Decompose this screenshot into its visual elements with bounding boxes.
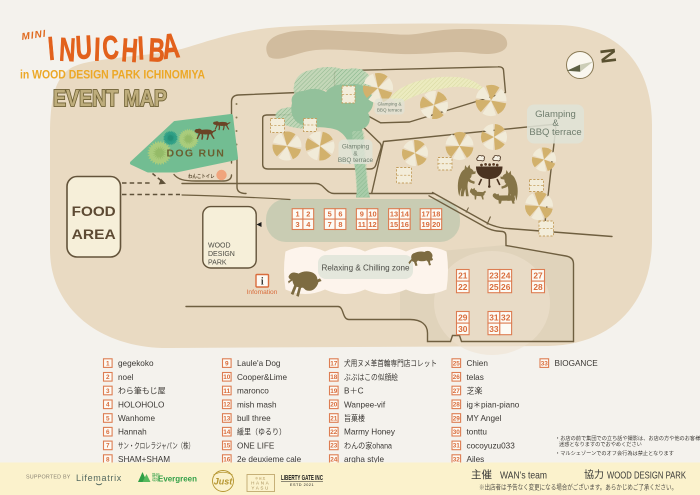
svg-text:EVENT MAP: EVENT MAP <box>53 85 167 111</box>
svg-text:犬用ヌメ革首輪専門店コレット: 犬用ヌメ革首輪専門店コレット <box>344 358 437 368</box>
svg-text:8: 8 <box>338 220 342 229</box>
svg-text:わんこトイレ: わんこトイレ <box>188 173 215 180</box>
svg-text:9: 9 <box>360 210 364 219</box>
svg-text:N: N <box>58 30 76 68</box>
svg-text:Just: Just <box>214 477 234 487</box>
svg-text:6: 6 <box>338 210 342 219</box>
svg-text:31: 31 <box>453 443 461 450</box>
svg-text:わんの家ohana: わんの家ohana <box>344 440 393 450</box>
svg-text:28: 28 <box>453 402 461 409</box>
svg-text:20: 20 <box>330 402 338 409</box>
svg-text:※出店者は予告なく変更になる場合がございます。あらかじめご了: ※出店者は予告なく変更になる場合がございます。あらかじめご了承ください。 <box>479 483 677 492</box>
svg-text:21: 21 <box>330 415 338 422</box>
svg-text:28: 28 <box>533 282 543 292</box>
svg-text:cocoyuzu033: cocoyuzu033 <box>467 441 516 450</box>
svg-text:Laule'a Dog: Laule'a Dog <box>237 359 281 368</box>
svg-text:AREA: AREA <box>72 227 116 242</box>
svg-text:telas: telas <box>467 373 484 382</box>
svg-text:19: 19 <box>330 388 338 395</box>
svg-text:迷惑となりますのでおやめください: 迷惑となりますのでおやめください <box>559 440 642 448</box>
svg-text:14: 14 <box>401 210 410 219</box>
svg-text:12: 12 <box>223 402 231 409</box>
svg-text:DESIGN: DESIGN <box>208 251 235 258</box>
svg-text:Lifematrix: Lifematrix <box>76 473 122 483</box>
svg-text:13: 13 <box>223 415 231 422</box>
svg-text:25: 25 <box>453 360 461 367</box>
svg-text:30: 30 <box>453 429 461 436</box>
svg-text:BBQ terrace: BBQ terrace <box>529 127 581 138</box>
svg-text:mish mash: mish mash <box>237 400 277 409</box>
svg-text:5: 5 <box>106 415 110 422</box>
svg-text:芝楽: 芝楽 <box>467 386 483 396</box>
svg-text:16: 16 <box>223 456 231 463</box>
svg-text:Marmy Honey: Marmy Honey <box>344 428 396 437</box>
svg-text:ig＊pian-piano: ig＊pian-piano <box>467 400 520 409</box>
svg-text:in WOOD DESIGN PARK ICHINOMIYA: in WOOD DESIGN PARK ICHINOMIYA <box>20 70 205 82</box>
svg-text:26: 26 <box>453 374 461 381</box>
svg-text:11: 11 <box>358 220 366 229</box>
svg-text:23: 23 <box>489 270 499 280</box>
svg-text:Infomation: Infomation <box>247 289 278 296</box>
svg-text:7: 7 <box>328 220 332 229</box>
svg-text:1: 1 <box>296 210 300 219</box>
svg-text:30: 30 <box>458 324 468 334</box>
svg-text:Glamping &: Glamping & <box>377 101 401 106</box>
svg-text:YASU: YASU <box>251 486 270 491</box>
svg-text:29: 29 <box>458 312 468 322</box>
svg-text:SUPPORTED BY: SUPPORTED BY <box>26 475 71 481</box>
svg-text:29: 29 <box>453 415 461 422</box>
svg-text:BBQ terrace: BBQ terrace <box>338 157 374 164</box>
svg-text:4: 4 <box>106 402 110 409</box>
svg-text:17: 17 <box>330 360 338 367</box>
svg-text:旨菓楼: 旨菓楼 <box>344 413 365 423</box>
svg-text:・マルシェゾーンでのオフ会行為は禁止となります: ・マルシェゾーンでのオフ会行為は禁止となります <box>555 449 674 457</box>
svg-text:6: 6 <box>106 429 110 436</box>
svg-text:Relaxing & Chilling zone: Relaxing & Chilling zone <box>322 263 410 273</box>
svg-text:27: 27 <box>533 270 543 280</box>
svg-text:HOLOHOLO: HOLOHOLO <box>118 400 164 409</box>
svg-text:8: 8 <box>106 456 110 463</box>
svg-text:33: 33 <box>489 324 499 334</box>
svg-text:18: 18 <box>432 210 440 219</box>
svg-text:FOOD: FOOD <box>72 204 116 219</box>
svg-text:・お店の前で集団での立ち話や撮影は、お店の方や他のお客様に: ・お店の前で集団での立ち話や撮影は、お店の方や他のお客様に <box>555 434 700 442</box>
svg-text:I: I <box>93 30 101 68</box>
svg-text:Wanhome: Wanhome <box>118 414 155 423</box>
svg-text:27: 27 <box>453 388 461 395</box>
svg-text:B＋C: B＋C <box>344 387 364 396</box>
svg-text:23: 23 <box>330 443 338 450</box>
svg-text:13: 13 <box>390 210 398 219</box>
svg-text:Wanpee-vif: Wanpee-vif <box>344 400 386 409</box>
svg-text:サン・クロレラジャパン（株）: サン・クロレラジャパン（株） <box>118 440 194 450</box>
svg-text:22: 22 <box>458 282 468 292</box>
svg-text:24: 24 <box>330 456 338 463</box>
svg-text:25: 25 <box>489 282 499 292</box>
svg-text:10: 10 <box>368 210 376 219</box>
svg-text:32: 32 <box>453 456 461 463</box>
svg-text:ONE LIFE: ONE LIFE <box>237 441 275 450</box>
svg-text:ESTD 2021: ESTD 2021 <box>290 483 314 487</box>
svg-text:3: 3 <box>106 388 110 395</box>
svg-text:3: 3 <box>296 220 300 229</box>
svg-text:1: 1 <box>106 360 110 367</box>
svg-text:2: 2 <box>306 210 310 219</box>
svg-text:Evergreen: Evergreen <box>158 474 197 484</box>
svg-text:MY Angel: MY Angel <box>467 414 502 423</box>
svg-text:14: 14 <box>223 429 231 436</box>
svg-text:DOG RUN: DOG RUN <box>167 148 226 160</box>
svg-text:21: 21 <box>458 270 468 280</box>
svg-text:noel: noel <box>118 373 134 382</box>
svg-text:maronco: maronco <box>237 387 269 396</box>
svg-text:Hannah: Hannah <box>118 428 147 437</box>
svg-text:9: 9 <box>225 360 229 367</box>
svg-text:i: i <box>261 277 264 288</box>
svg-text:33: 33 <box>541 360 549 367</box>
svg-text:16: 16 <box>401 220 409 229</box>
svg-text:主催: 主催 <box>471 468 492 481</box>
svg-text:WOOD: WOOD <box>208 243 231 250</box>
svg-text:15: 15 <box>390 220 398 229</box>
svg-text:協力: 協力 <box>584 468 604 481</box>
svg-text:10: 10 <box>223 374 231 381</box>
svg-text:2: 2 <box>106 374 110 381</box>
svg-text:H: H <box>120 31 139 69</box>
svg-text:5: 5 <box>328 210 332 219</box>
svg-text:11: 11 <box>223 388 230 395</box>
svg-text:gegekoko: gegekoko <box>118 359 154 368</box>
svg-text:Chien: Chien <box>467 359 489 368</box>
svg-text:tonttu: tonttu <box>467 428 488 437</box>
svg-text:7: 7 <box>106 443 110 450</box>
svg-text:N: N <box>595 47 620 65</box>
svg-text:18: 18 <box>330 374 338 381</box>
svg-text:Cooper&Lime: Cooper&Lime <box>237 373 288 382</box>
svg-text:12: 12 <box>368 220 376 229</box>
svg-text:PARK: PARK <box>208 260 227 267</box>
svg-text:32: 32 <box>501 312 511 322</box>
svg-text:24: 24 <box>501 270 511 280</box>
svg-text:WAN’s team: WAN’s team <box>500 470 547 482</box>
svg-text:U: U <box>75 28 93 66</box>
svg-text:わら筆もじ屋: わら筆もじ屋 <box>118 386 166 396</box>
svg-text:bull three: bull three <box>237 414 271 423</box>
svg-text:WOOD DESIGN PARK: WOOD DESIGN PARK <box>607 470 686 482</box>
svg-text:31: 31 <box>489 312 499 322</box>
svg-text:BBQ terrace: BBQ terrace <box>377 108 403 113</box>
svg-text:19: 19 <box>421 220 429 229</box>
svg-text:緩里（ゆるり）: 緩里（ゆるり） <box>237 427 286 437</box>
svg-text:ぶぶはこの似顔絵: ぶぶはこの似顔絵 <box>344 372 398 382</box>
svg-text:LIBERTY GATE INC: LIBERTY GATE INC <box>281 473 323 482</box>
svg-text:C: C <box>101 28 120 67</box>
svg-text:26: 26 <box>501 282 511 292</box>
svg-text:22: 22 <box>330 429 338 436</box>
svg-text:20: 20 <box>432 220 440 229</box>
svg-text:BIOGANCE: BIOGANCE <box>555 359 599 368</box>
svg-text:17: 17 <box>421 210 429 219</box>
svg-text:15: 15 <box>223 443 231 450</box>
